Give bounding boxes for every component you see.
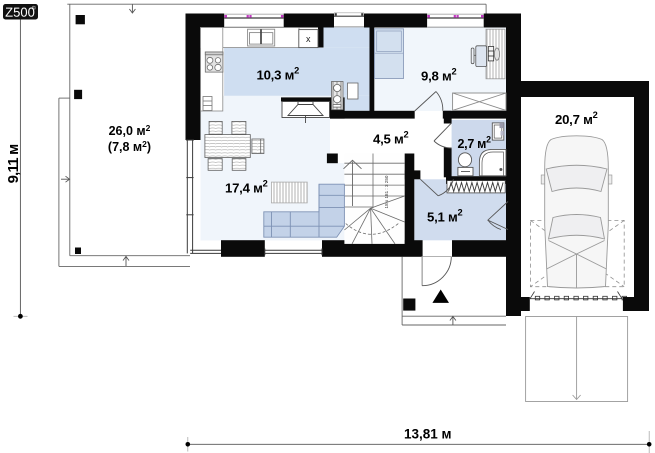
svg-text:17,4 м2: 17,4 м2 bbox=[225, 179, 268, 196]
svg-text:20,7 м2: 20,7 м2 bbox=[555, 110, 598, 127]
svg-text:2,7 м2: 2,7 м2 bbox=[458, 135, 492, 152]
svg-text:13,81 м: 13,81 м bbox=[404, 427, 452, 442]
svg-text:26,0 м2: 26,0 м2 bbox=[109, 123, 151, 138]
svg-text:x: x bbox=[306, 34, 311, 44]
svg-text:10,3 м2: 10,3 м2 bbox=[257, 66, 300, 83]
svg-text:9,11 м: 9,11 м bbox=[5, 144, 22, 184]
svg-text:Z500: Z500 bbox=[5, 5, 35, 20]
svg-text:9,8 м2: 9,8 м2 bbox=[421, 67, 457, 84]
svg-text:4,5 м2: 4,5 м2 bbox=[373, 130, 409, 147]
svg-text:5,1 м2: 5,1 м2 bbox=[427, 208, 463, 225]
svg-text:18 x 181 : 3 250: 18 x 181 : 3 250 bbox=[384, 175, 389, 208]
svg-text:©: © bbox=[32, 5, 36, 12]
